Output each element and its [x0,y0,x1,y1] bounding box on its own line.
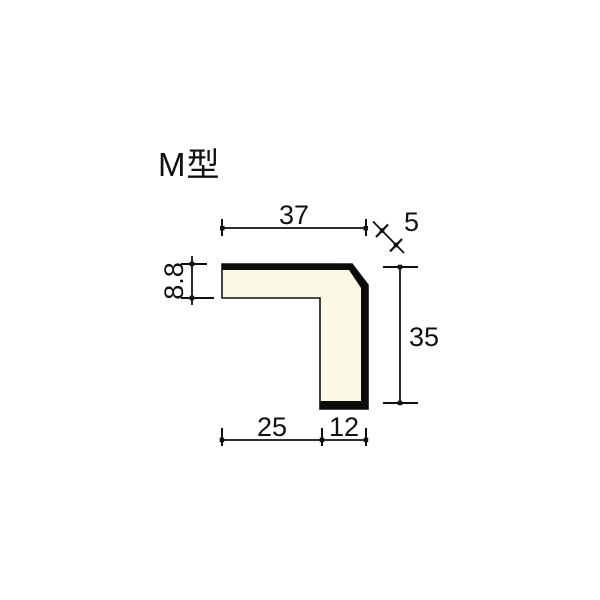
dim-dot [320,438,325,443]
drawing-canvas: M型 37 5 8 [0,0,600,600]
dim-dot [190,296,195,301]
dim-label-top-width: 37 [279,200,309,230]
dim-dot [394,243,399,248]
dim-dot [364,438,369,443]
cross-section-diagram: 37 5 8.8 35 [0,0,600,600]
dim-chamfer [373,222,404,254]
dim-dot [398,401,403,406]
dim-label-right-height: 35 [409,322,439,352]
dim-dot [220,226,225,231]
dim-line-chamfer [373,222,404,254]
dim-label-chamfer: 5 [404,207,419,237]
dim-label-bottom-inner-width: 25 [257,412,287,442]
dim-label-top-thickness: 8.8 [159,262,189,300]
profile-outline [222,264,368,409]
dim-dot [380,228,385,233]
dim-dot [364,226,369,231]
dim-dot [190,262,195,267]
dim-dot [220,438,225,443]
dim-dot [398,265,403,270]
dim-label-bottom-leg-width: 12 [329,412,359,442]
